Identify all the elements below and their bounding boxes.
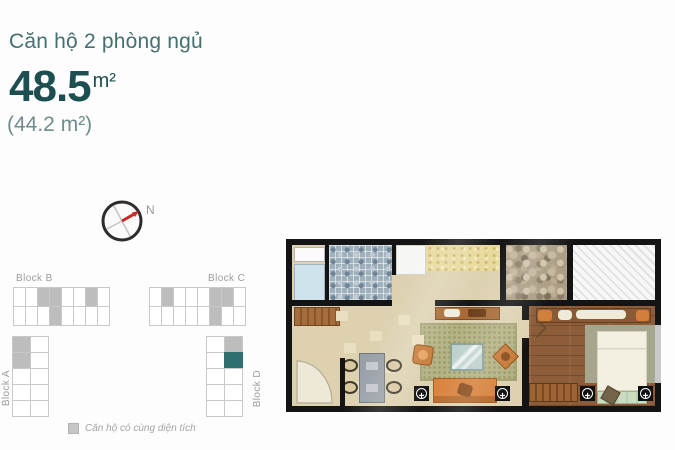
placemat	[366, 362, 378, 370]
unit-cell-same-area	[12, 336, 31, 353]
compass-icon	[98, 196, 148, 246]
block-c-footprint	[150, 288, 246, 326]
bench-pad	[538, 310, 552, 321]
legend-swatch	[68, 423, 79, 434]
unit-cell	[206, 384, 225, 401]
unit-cell	[97, 306, 110, 326]
ac-glyph: +	[500, 391, 506, 402]
ac-unit-icon: +	[414, 386, 429, 401]
ac-unit-icon: +	[495, 386, 510, 401]
unit-cell-same-area	[12, 352, 31, 369]
wall-mid-left	[292, 300, 392, 306]
floor-tile	[336, 311, 348, 321]
unit-cell	[30, 400, 49, 417]
coffee-table	[450, 343, 484, 371]
wall-shower	[325, 245, 329, 300]
dining-table	[359, 353, 385, 403]
block-b-footprint	[14, 288, 110, 326]
unit-cell	[224, 400, 243, 417]
bench-pad	[636, 310, 649, 321]
unit-cell	[30, 352, 49, 369]
bed	[597, 331, 647, 391]
ac-unit-icon: +	[638, 386, 653, 401]
wall-pebble-balcony	[567, 245, 573, 300]
unit-cell	[30, 336, 49, 353]
dining-chair	[386, 359, 402, 372]
dresser	[529, 383, 578, 402]
block-c-label: Block C	[208, 273, 245, 284]
bathroom	[329, 245, 392, 300]
unit-cell	[206, 368, 225, 385]
page: { "header": { "title": "Căn hộ 2 phòng n…	[0, 0, 675, 450]
unit-cell	[30, 384, 49, 401]
area-value: 48.5	[9, 62, 91, 111]
floor-tile	[398, 315, 410, 325]
unit-cell	[206, 352, 225, 369]
block-b-label: Block B	[16, 273, 53, 284]
wall-bottom	[286, 406, 661, 412]
unit-cell-selected	[224, 352, 243, 369]
floor-tile	[370, 331, 382, 341]
wardrobe	[294, 307, 340, 326]
entry-nook	[396, 245, 426, 275]
bench-cushion	[576, 310, 626, 319]
pebble-patio	[506, 245, 567, 300]
ac-unit-icon: +	[580, 386, 595, 401]
ac-glyph: +	[643, 391, 649, 402]
unit-cell	[233, 306, 246, 326]
wall-dining-stub	[340, 358, 345, 406]
placemat	[366, 384, 378, 392]
area-main: 48.5m²	[9, 62, 116, 112]
wall-bedroom-upper	[522, 306, 529, 320]
unit-cell	[12, 384, 31, 401]
wall-bedroom-lower	[522, 338, 529, 406]
compass-north-label: N	[146, 203, 155, 217]
block-a-label: Block A	[1, 370, 12, 406]
shower-room	[294, 264, 325, 301]
console-cushion	[444, 309, 460, 317]
wall-bath-hall	[392, 245, 396, 275]
ac-glyph: +	[585, 391, 591, 402]
unit-cell	[97, 287, 110, 307]
wall-top	[286, 239, 661, 245]
page-title: Căn hộ 2 phòng ngủ	[9, 30, 203, 54]
unit-cell	[206, 336, 225, 353]
unit-cell-same-area	[224, 336, 243, 353]
side-table-top	[501, 352, 510, 361]
wall-mid-right	[435, 300, 655, 306]
entry-door-arc	[294, 359, 334, 405]
armchair-cushion	[418, 350, 428, 360]
area-unit: m²	[93, 70, 116, 92]
wall-left	[286, 239, 292, 412]
block-d-footprint	[207, 337, 243, 417]
unit-cell	[224, 368, 243, 385]
floorplan: + + + +	[286, 239, 661, 412]
wall-kitchen-pebble	[500, 245, 506, 300]
dining-chair	[386, 381, 402, 394]
laundry-cabinet	[294, 247, 325, 262]
unit-cell	[30, 368, 49, 385]
unit-cell	[12, 400, 31, 417]
block-a-footprint	[13, 337, 49, 417]
bedroom-window	[655, 325, 661, 383]
unit-cell	[12, 368, 31, 385]
unit-cell	[206, 400, 225, 417]
area-secondary: (44.2 m²)	[7, 113, 92, 137]
balcony-hatched	[573, 245, 655, 300]
legend: Căn hộ có cùng diện tích	[68, 423, 196, 434]
unit-cell	[224, 384, 243, 401]
ac-glyph: +	[419, 391, 425, 402]
floor-tile	[344, 343, 356, 353]
legend-text: Căn hộ có cùng diện tích	[85, 423, 196, 434]
console-item	[468, 309, 486, 317]
bench-pillow	[558, 310, 572, 320]
block-d-label: Block D	[252, 370, 263, 407]
unit-cell	[233, 287, 246, 307]
kitchen-counter	[426, 245, 500, 271]
